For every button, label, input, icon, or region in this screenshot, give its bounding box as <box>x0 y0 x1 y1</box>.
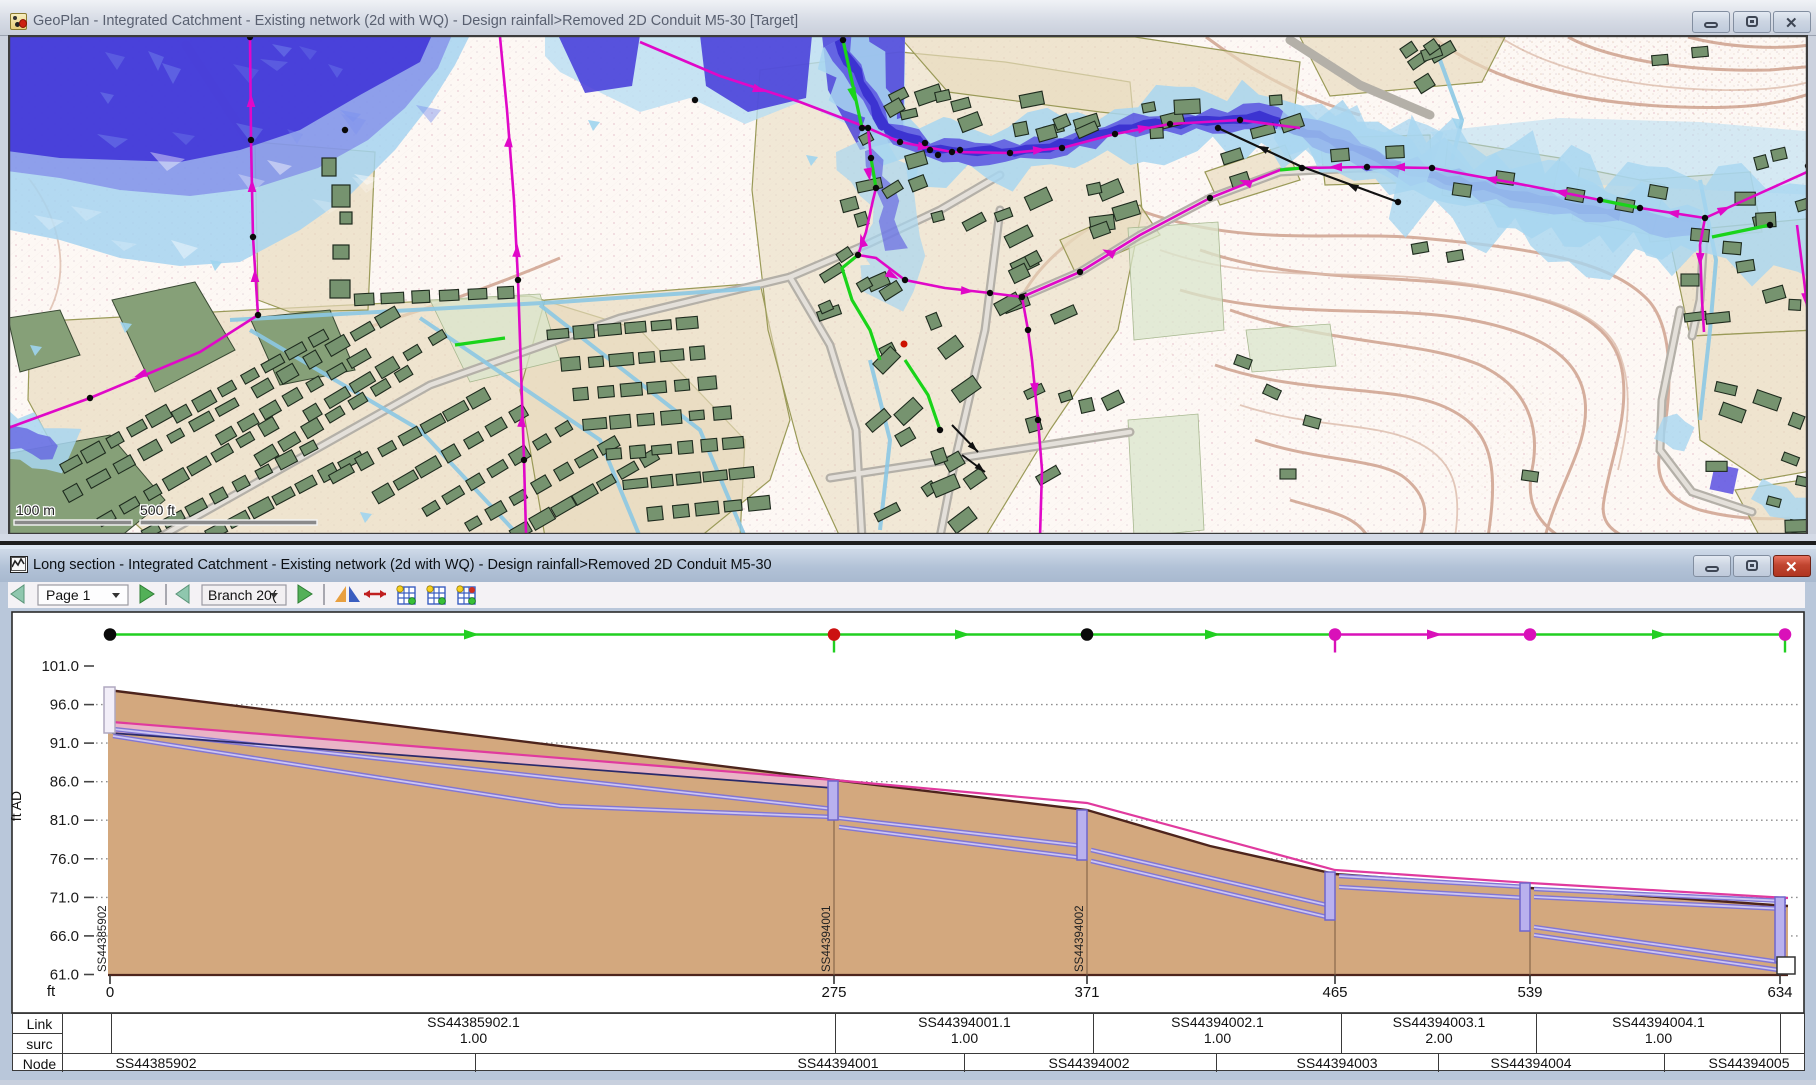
svg-text:86.0: 86.0 <box>50 774 79 791</box>
svg-text:539: 539 <box>1517 984 1542 1001</box>
svg-text:SS44385902: SS44385902 <box>97 905 109 972</box>
svg-text:ft: ft <box>47 983 56 1000</box>
svg-text:465: 465 <box>1322 984 1347 1001</box>
svg-text:91.0: 91.0 <box>50 735 79 752</box>
svg-text:500 ft: 500 ft <box>140 502 175 518</box>
svg-text:81.0: 81.0 <box>50 812 79 829</box>
svg-text:SS44394002: SS44394002 <box>1074 905 1086 972</box>
svg-text:61.0: 61.0 <box>50 967 79 984</box>
svg-text:0: 0 <box>106 984 114 1001</box>
svg-text:SS44394001: SS44394001 <box>821 905 833 972</box>
svg-text:76.0: 76.0 <box>50 851 79 868</box>
svg-text:275: 275 <box>821 984 846 1001</box>
svg-text:634: 634 <box>1767 984 1792 1001</box>
svg-text:71.0: 71.0 <box>50 889 79 906</box>
svg-text:371: 371 <box>1074 984 1099 1001</box>
svg-text:66.0: 66.0 <box>50 928 79 945</box>
svg-text:96.0: 96.0 <box>50 697 79 714</box>
svg-text:101.0: 101.0 <box>41 658 79 675</box>
svg-text:ft AD: ft AD <box>8 791 24 821</box>
svg-text:100 m: 100 m <box>16 502 55 518</box>
